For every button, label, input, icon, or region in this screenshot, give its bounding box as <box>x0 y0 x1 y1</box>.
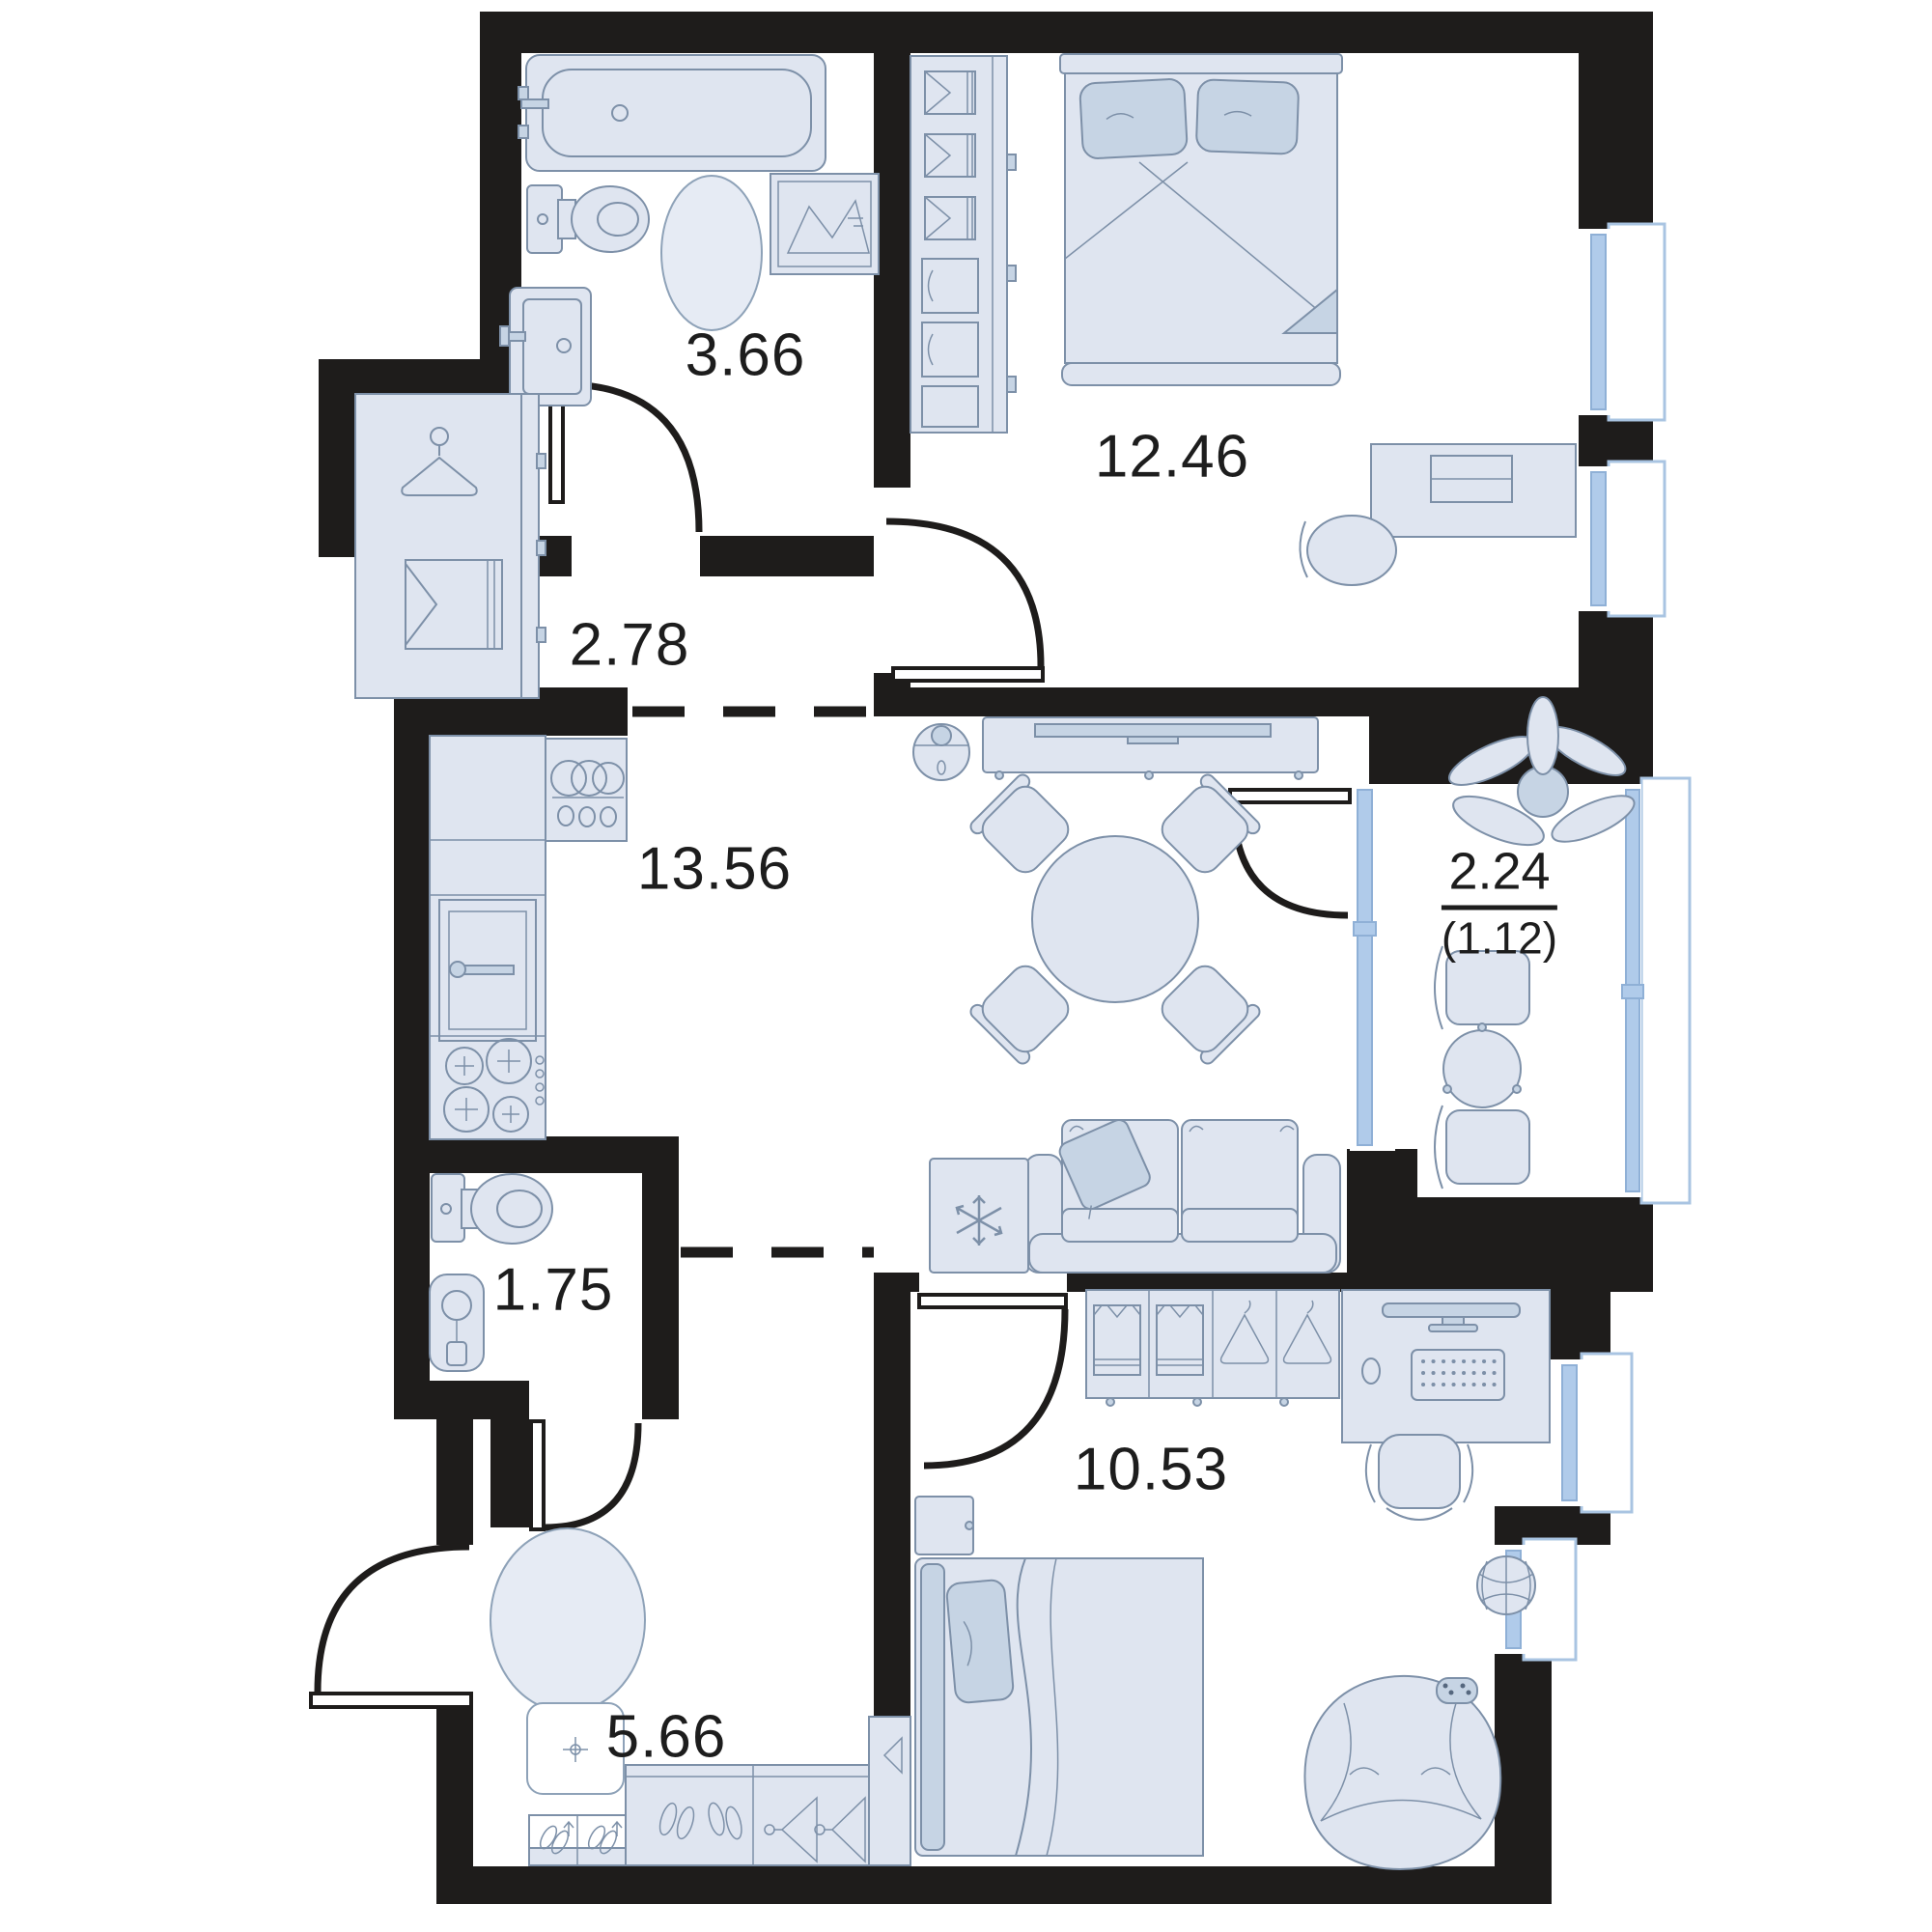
room-label-bathroom: 3.66 <box>686 322 806 390</box>
gamepad-icon <box>1437 1678 1477 1703</box>
room-label-kitchen-living: 13.56 <box>637 835 792 904</box>
bedroom-main-desk-icon <box>1300 444 1576 585</box>
laundry-basket-icon <box>770 174 879 274</box>
basketball-icon <box>1477 1556 1535 1614</box>
entry-closet-icon <box>626 1765 874 1865</box>
washing-machine-icon <box>546 739 627 841</box>
bathtub-icon <box>518 55 826 171</box>
dining-table-icon <box>1032 836 1198 1002</box>
dining-set-icon <box>968 772 1263 1067</box>
door-entrance <box>311 1547 471 1707</box>
area-value: 12.46 <box>1095 424 1249 490</box>
corner-closet-icon <box>869 1717 910 1865</box>
window-balcony-glazing <box>1603 778 1690 1203</box>
door-bedroom-main <box>886 521 1043 681</box>
bedroom-main-wardrobe-icon <box>910 56 1016 433</box>
floor-plan-drawing <box>0 0 1932 1932</box>
bath-rug-icon <box>661 176 762 330</box>
area-value: 5.66 <box>606 1704 727 1771</box>
hall-rug-icon <box>490 1528 645 1712</box>
balcony-area-reduced: (1.12) <box>1442 910 1557 965</box>
room-label-hallway-entry: 5.66 <box>606 1703 727 1772</box>
sink-icon <box>500 288 591 406</box>
area-value: 10.53 <box>1074 1437 1228 1503</box>
sofa-icon <box>1025 1117 1340 1273</box>
balcony-chair-icon <box>1435 1106 1529 1189</box>
toilet-icon <box>527 185 649 253</box>
window-bedroom-main-2 <box>1581 462 1665 616</box>
office-chair-icon <box>1366 1435 1472 1520</box>
balcony-table-icon <box>1443 1023 1521 1107</box>
kitchen-counter-icon <box>430 736 546 1139</box>
bedroom-second-desk-icon <box>1342 1290 1550 1442</box>
wc-toilet-icon <box>432 1174 552 1244</box>
window-bedroom-second-1 <box>1552 1354 1632 1512</box>
window-bedroom-main-1 <box>1581 224 1665 420</box>
water-heater-icon <box>430 1274 484 1371</box>
shoe-rack-icon <box>529 1815 626 1865</box>
room-label-bedroom-main: 12.46 <box>1095 423 1249 491</box>
room-label-wc: 1.75 <box>493 1256 614 1325</box>
door-bedroom-second <box>919 1295 1066 1466</box>
door-balcony <box>1230 790 1350 915</box>
area-value: 2.78 <box>570 612 690 679</box>
nightstand-icon <box>915 1497 973 1554</box>
bean-bag-icon <box>1304 1676 1500 1869</box>
area-value: 1.75 <box>493 1257 614 1324</box>
floor-plan: 3.66 2.78 12.46 13.56 2.24 (1.12) 1.75 5… <box>0 0 1932 1932</box>
door-wc <box>531 1421 638 1529</box>
room-label-bedroom-second: 10.53 <box>1074 1436 1228 1504</box>
tv-console-icon <box>983 717 1318 779</box>
balcony-partition-glazing <box>1350 784 1395 1151</box>
hall-wardrobe-icon <box>355 394 546 698</box>
bedroom-second-wardrobe-icon <box>1086 1290 1339 1406</box>
room-label-hallway-top: 2.78 <box>570 611 690 680</box>
fridge-icon <box>930 1159 1028 1273</box>
robot-vacuum-icon <box>913 724 969 780</box>
balcony-area-full: 2.24 <box>1442 842 1557 910</box>
room-label-balcony: 2.24 (1.12) <box>1442 842 1557 965</box>
single-bed-icon <box>915 1558 1203 1856</box>
area-value: 13.56 <box>637 836 792 903</box>
area-value: 3.66 <box>686 322 806 389</box>
double-bed-icon <box>1060 54 1342 385</box>
